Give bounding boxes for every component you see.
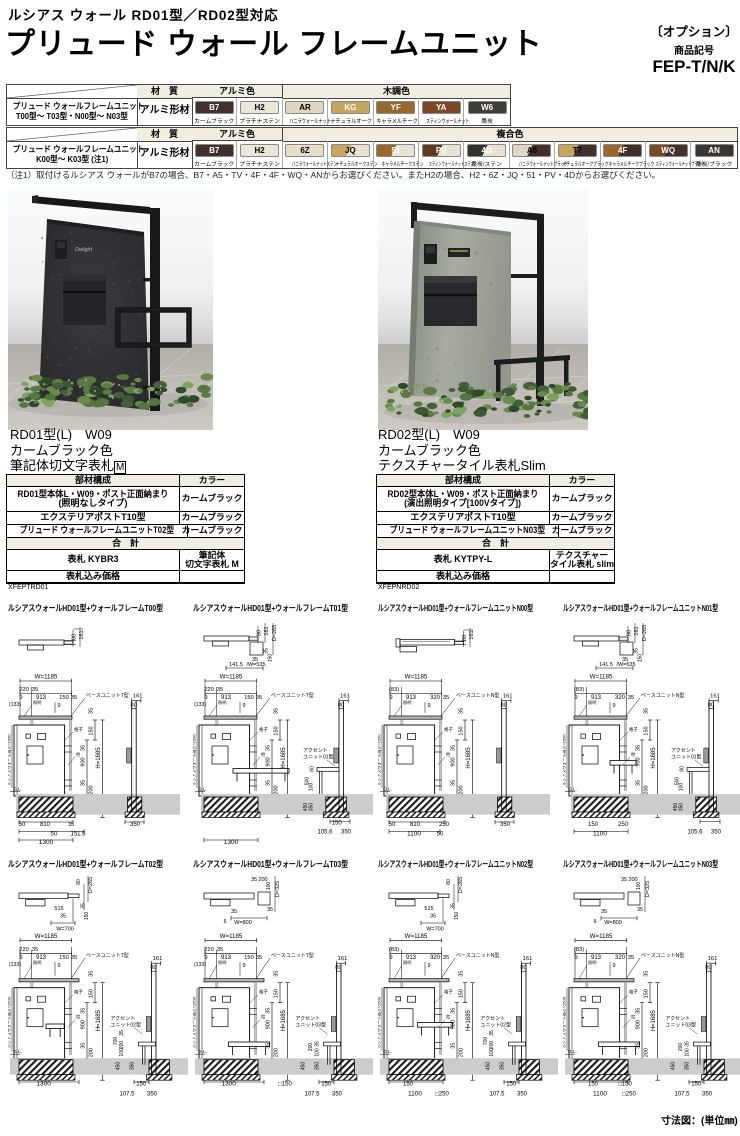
- svg-text:35: 35: [89, 708, 95, 714]
- svg-text:80: 80: [310, 766, 316, 772]
- svg-text:900: 900: [636, 1020, 642, 1029]
- svg-text:200: 200: [644, 1048, 650, 1057]
- svg-text:100: 100: [315, 1048, 321, 1057]
- svg-text:格子: 格子: [74, 989, 83, 996]
- svg-text:35: 35: [267, 907, 273, 913]
- svg-text:161: 161: [469, 630, 475, 639]
- svg-text:35: 35: [81, 780, 87, 786]
- svg-text:80: 80: [335, 965, 341, 971]
- svg-text:□150: □150: [278, 1082, 292, 1088]
- svg-text:□250: □250: [622, 1092, 636, 1098]
- svg-text:35: 35: [217, 687, 223, 693]
- svg-text:35: 35: [264, 648, 270, 654]
- svg-text:150: 150: [459, 989, 465, 998]
- svg-text:9: 9: [613, 963, 616, 969]
- svg-text:350: 350: [308, 803, 314, 812]
- svg-text:W=1185: W=1185: [35, 933, 58, 940]
- svg-text:柱: 柱: [631, 1014, 636, 1021]
- svg-text:ルシアスウォールHD01型+ウォールフレームユニットN03型: ルシアスウォールHD01型+ウォールフレームユニットN03型: [563, 859, 718, 869]
- svg-text:161: 161: [708, 956, 718, 962]
- svg-text:200: 200: [274, 785, 280, 794]
- svg-text:格子: 格子: [74, 726, 83, 733]
- svg-text:アクセント: アクセント: [295, 1016, 320, 1022]
- svg-text:35: 35: [251, 877, 257, 883]
- svg-text:ルシアスウォールHD01型+ウォールフレームユニットN01型: ルシアスウォールHD01型+ウォールフレームユニットN01型: [563, 603, 718, 613]
- svg-text:35: 35: [89, 971, 95, 977]
- svg-text:1300: 1300: [36, 1081, 51, 1088]
- svg-text:350: 350: [147, 1092, 158, 1098]
- svg-text:150: 150: [691, 1082, 702, 1088]
- svg-text:80: 80: [76, 879, 82, 885]
- svg-text:柱: 柱: [446, 751, 451, 758]
- svg-text:35: 35: [430, 914, 436, 920]
- svg-text:アクセント: アクセント: [110, 1016, 135, 1022]
- svg-text:照明: 照明: [218, 960, 226, 966]
- svg-text:35: 35: [621, 877, 627, 883]
- svg-text:35: 35: [32, 947, 38, 953]
- svg-text:/W=535: /W=535: [246, 662, 265, 668]
- svg-text:80: 80: [150, 965, 156, 971]
- svg-text:35: 35: [266, 745, 272, 751]
- svg-text:ベースユニットT型: ベースユニットT型: [271, 952, 314, 959]
- svg-text:35: 35: [443, 955, 449, 961]
- svg-text:700: 700: [113, 1037, 119, 1046]
- svg-text:アクセント: アクセント: [303, 748, 328, 754]
- svg-text:35: 35: [634, 648, 640, 654]
- svg-text:ユニット01型: ユニット01型: [303, 754, 334, 761]
- svg-text:107.5: 107.5: [304, 1092, 320, 1098]
- svg-text:350: 350: [500, 822, 511, 828]
- svg-text:(133): (133): [194, 962, 206, 968]
- svg-text:W=1185: W=1185: [220, 674, 243, 681]
- svg-text:ベースユニットT型: ベースユニットT型: [271, 692, 314, 699]
- svg-text:ユニット02型: ユニット02型: [480, 1022, 511, 1029]
- svg-text:161: 161: [338, 956, 348, 962]
- svg-text:H=1685: H=1685: [651, 747, 657, 769]
- svg-text:柱: 柱: [631, 751, 636, 758]
- svg-text:450: 450: [115, 1062, 121, 1071]
- svg-text:ユニット01型: ユニット01型: [671, 754, 702, 761]
- svg-text:150: 150: [644, 989, 650, 998]
- svg-text:ベースユニットN型: ベースユニットN型: [456, 692, 499, 699]
- svg-text:D=325: D=325: [275, 881, 281, 897]
- svg-text:350: 350: [685, 1062, 691, 1071]
- svg-text:810: 810: [410, 822, 421, 828]
- svg-text:50: 50: [19, 822, 26, 828]
- svg-text:200: 200: [489, 1041, 495, 1050]
- svg-text:ルシアスウォール高さ=1500: ルシアスウォール高さ=1500: [8, 734, 12, 786]
- svg-text:220: 220: [204, 687, 214, 693]
- svg-text:900: 900: [636, 757, 642, 766]
- svg-text:ルシアスウォール高さ=1500: ルシアスウォール高さ=1500: [378, 734, 382, 786]
- svg-text:100: 100: [266, 882, 272, 891]
- svg-text:アクセント: アクセント: [480, 1016, 505, 1022]
- svg-text:W=800: W=800: [234, 920, 252, 926]
- svg-text:161: 161: [340, 694, 350, 700]
- svg-text:35: 35: [81, 1008, 87, 1014]
- svg-text:35: 35: [637, 907, 643, 913]
- svg-text:200: 200: [459, 1048, 465, 1057]
- svg-text:35: 35: [636, 780, 642, 786]
- svg-text:515: 515: [424, 906, 433, 912]
- svg-text:80: 80: [130, 702, 136, 708]
- svg-text:6: 6: [224, 919, 227, 925]
- svg-text:W=1185: W=1185: [35, 674, 58, 681]
- svg-text:ベースユニットT型: ベースユニットT型: [86, 692, 129, 699]
- svg-text:320: 320: [430, 955, 441, 961]
- svg-text:150: 150: [403, 1082, 414, 1088]
- svg-text:150: 150: [89, 726, 95, 735]
- svg-text:100: 100: [636, 882, 642, 891]
- svg-text:35: 35: [266, 780, 272, 786]
- svg-text:35: 35: [119, 1030, 125, 1036]
- svg-text:(83): (83): [389, 947, 399, 953]
- svg-text:107.5: 107.5: [119, 1092, 135, 1098]
- svg-text:35: 35: [451, 1008, 457, 1014]
- svg-text:35: 35: [32, 687, 38, 693]
- svg-text:350: 350: [711, 830, 722, 836]
- svg-text:W=700: W=700: [426, 927, 444, 933]
- svg-text:150: 150: [59, 955, 69, 961]
- svg-text:80: 80: [462, 635, 468, 641]
- svg-text:照明: 照明: [33, 960, 41, 966]
- svg-text:9: 9: [58, 963, 61, 969]
- svg-text:350: 350: [341, 830, 352, 836]
- svg-text:H=1685: H=1685: [281, 747, 287, 769]
- svg-text:200: 200: [459, 785, 465, 794]
- svg-text:161: 161: [710, 694, 720, 700]
- svg-text:200: 200: [644, 785, 650, 794]
- svg-text:35: 35: [459, 708, 465, 714]
- svg-text:(83): (83): [574, 947, 584, 953]
- svg-text:ユニット03型: ユニット03型: [295, 1022, 326, 1029]
- svg-text:100: 100: [685, 1048, 691, 1057]
- svg-text:35: 35: [451, 903, 457, 909]
- svg-text:H=1685: H=1685: [466, 1009, 472, 1031]
- svg-text:9: 9: [613, 703, 616, 709]
- svg-text:900: 900: [81, 1020, 87, 1029]
- svg-text:35: 35: [644, 708, 650, 714]
- svg-text:照明: 照明: [588, 700, 596, 706]
- svg-text:220: 220: [19, 947, 29, 953]
- svg-text:320: 320: [430, 695, 441, 701]
- svg-text:150: 150: [506, 1082, 517, 1088]
- svg-text:ベースユニットN型: ベースユニットN型: [641, 692, 684, 699]
- svg-text:Delight: Delight: [75, 247, 93, 253]
- svg-text:1100: 1100: [593, 1091, 607, 1098]
- svg-text:アクセント: アクセント: [665, 1016, 690, 1022]
- svg-text:35: 35: [81, 903, 87, 909]
- svg-text:100: 100: [308, 783, 314, 792]
- svg-text:350: 350: [678, 803, 684, 812]
- svg-text:450: 450: [670, 1062, 676, 1071]
- svg-text:照明: 照明: [403, 700, 411, 706]
- svg-text:□250: □250: [435, 1092, 449, 1098]
- svg-text:320: 320: [615, 695, 626, 701]
- svg-text:161: 161: [153, 956, 163, 962]
- svg-text:柱: 柱: [76, 1014, 81, 1021]
- svg-text:161: 161: [264, 626, 270, 635]
- svg-text:柱: 柱: [446, 1014, 451, 1021]
- svg-text:35: 35: [443, 695, 449, 701]
- svg-text:250: 250: [439, 822, 450, 828]
- svg-text:161: 161: [133, 694, 143, 700]
- svg-text:□150: □150: [618, 1082, 632, 1088]
- svg-text:350: 350: [500, 1062, 506, 1071]
- svg-text:107.5: 107.5: [674, 1092, 690, 1098]
- svg-text:80: 80: [627, 630, 633, 636]
- svg-text:80: 80: [705, 965, 711, 971]
- svg-text:700: 700: [483, 1037, 489, 1046]
- svg-text:50: 50: [437, 832, 444, 838]
- svg-text:350: 350: [332, 1092, 343, 1098]
- svg-text:900: 900: [81, 757, 87, 766]
- svg-text:80: 80: [257, 630, 263, 636]
- svg-text:W=1185: W=1185: [590, 933, 613, 940]
- svg-text:照明: 照明: [33, 700, 41, 706]
- svg-text:200: 200: [89, 785, 95, 794]
- svg-text:H=1685: H=1685: [96, 747, 102, 769]
- svg-text:W=700: W=700: [56, 927, 74, 933]
- svg-text:ルシアスウォールHD01型+ウォールフレームT00型: ルシアスウォールHD01型+ウォールフレームT00型: [8, 603, 163, 613]
- svg-text:150: 150: [59, 695, 69, 701]
- svg-text:ルシアスウォール高さ=1500: ルシアスウォール高さ=1500: [193, 734, 197, 786]
- svg-text:ベースユニットN型: ベースユニットN型: [641, 952, 684, 959]
- svg-text:35: 35: [685, 1041, 691, 1047]
- svg-text:35: 35: [636, 745, 642, 751]
- svg-text:150: 150: [274, 989, 280, 998]
- svg-text:柱: 柱: [76, 751, 81, 758]
- svg-text:450: 450: [300, 1062, 306, 1071]
- svg-text:150: 150: [588, 1082, 599, 1088]
- svg-text:35: 35: [451, 1043, 457, 1049]
- svg-text:W=1185: W=1185: [590, 674, 613, 681]
- svg-text:150: 150: [321, 1082, 332, 1088]
- svg-text:35: 35: [60, 914, 66, 920]
- svg-text:450: 450: [485, 1062, 491, 1071]
- svg-text:W=1185: W=1185: [405, 674, 428, 681]
- svg-text:35: 35: [315, 1041, 321, 1047]
- svg-text:(83): (83): [389, 687, 399, 693]
- svg-text:1100: 1100: [408, 1091, 422, 1098]
- svg-text:(133): (133): [194, 702, 206, 708]
- svg-text:ルシアスウォールHD01型+ウォールフレームT01型: ルシアスウォールHD01型+ウォールフレームT01型: [193, 603, 348, 613]
- svg-text:H=1685: H=1685: [466, 747, 472, 769]
- svg-text:150: 150: [268, 654, 274, 663]
- svg-text:ルシアスウォール高さ=1500: ルシアスウォール高さ=1500: [563, 734, 567, 786]
- svg-text:H=1685: H=1685: [96, 1009, 102, 1031]
- svg-text:105.6: 105.6: [317, 830, 333, 836]
- svg-text:ベースユニットN型: ベースユニットN型: [456, 952, 499, 959]
- svg-text:35: 35: [644, 971, 650, 977]
- svg-text:150: 150: [454, 912, 460, 921]
- svg-text:D=265: D=265: [458, 877, 464, 893]
- svg-text:50: 50: [389, 822, 396, 828]
- svg-text:35: 35: [601, 909, 607, 915]
- svg-text:35: 35: [274, 971, 280, 977]
- svg-text:200: 200: [274, 1048, 280, 1057]
- svg-text:900: 900: [451, 757, 457, 766]
- svg-text:(133): (133): [9, 962, 21, 968]
- svg-text:161: 161: [503, 694, 513, 700]
- svg-text:350: 350: [517, 1092, 528, 1098]
- svg-text:照明: 照明: [218, 700, 226, 706]
- svg-text:格子: 格子: [259, 726, 268, 733]
- svg-text:150: 150: [89, 989, 95, 998]
- svg-text:900: 900: [266, 1020, 272, 1029]
- svg-text:150: 150: [638, 654, 644, 663]
- svg-text:ルシアスウォール高さ=1500: ルシアスウォール高さ=1500: [8, 996, 12, 1048]
- svg-text:35: 35: [217, 947, 223, 953]
- svg-text:105.6: 105.6: [687, 830, 703, 836]
- svg-text:ルシアスウォール高さ=1500: ルシアスウォール高さ=1500: [378, 996, 382, 1048]
- svg-text:ルシアスウォールHD01型+ウォールフレームユニットN00型: ルシアスウォールHD01型+ウォールフレームユニットN00型: [378, 603, 533, 613]
- svg-text:H=1685: H=1685: [281, 1009, 287, 1031]
- svg-text:80: 80: [72, 634, 78, 640]
- svg-text:(83): (83): [574, 687, 584, 693]
- svg-text:150: 150: [644, 726, 650, 735]
- svg-text:150: 150: [84, 912, 90, 921]
- svg-text:80: 80: [708, 702, 714, 708]
- svg-text:35: 35: [628, 695, 634, 701]
- svg-text:161: 161: [523, 956, 533, 962]
- svg-text:35: 35: [628, 955, 634, 961]
- svg-text:H=1685: H=1685: [651, 1009, 657, 1031]
- svg-text:9: 9: [58, 703, 61, 709]
- svg-text:900: 900: [451, 1020, 457, 1029]
- svg-text:200: 200: [119, 1041, 125, 1050]
- svg-text:ルシアスウォールHD01型+ウォールフレームユニットN02型: ルシアスウォールHD01型+ウォールフレームユニットN02型: [378, 859, 533, 869]
- svg-text:ルシアスウォール高さ=1500: ルシアスウォール高さ=1500: [193, 996, 197, 1048]
- svg-text:141.5: 141.5: [599, 662, 613, 668]
- svg-text:161: 161: [79, 630, 85, 639]
- svg-text:80: 80: [500, 702, 506, 708]
- svg-text:100: 100: [678, 783, 684, 792]
- svg-text:W=1185: W=1185: [220, 933, 243, 940]
- svg-text:35: 35: [266, 1008, 272, 1014]
- svg-text:W=800: W=800: [604, 920, 622, 926]
- svg-text:ルシアスウォールHD01型+ウォールフレームT02型: ルシアスウォールHD01型+ウォールフレームT02型: [8, 859, 163, 869]
- svg-text:アクセント: アクセント: [671, 748, 696, 754]
- svg-text:810: 810: [40, 822, 51, 828]
- svg-text:照明: 照明: [403, 960, 411, 966]
- svg-text:格子: 格子: [259, 989, 268, 996]
- svg-text:200: 200: [678, 1043, 684, 1052]
- svg-text:141.5: 141.5: [229, 662, 243, 668]
- svg-text:350: 350: [315, 1062, 321, 1071]
- svg-text:900: 900: [266, 757, 272, 766]
- svg-text:格子: 格子: [444, 726, 453, 733]
- svg-text:1300: 1300: [221, 1081, 236, 1088]
- svg-text:35: 35: [459, 971, 465, 977]
- svg-text:/W=535: /W=535: [616, 662, 635, 668]
- svg-text:9: 9: [428, 703, 431, 709]
- svg-text:150: 150: [588, 822, 599, 828]
- svg-text:D=325: D=325: [645, 881, 651, 897]
- svg-text:D=265: D=265: [88, 877, 94, 893]
- svg-text:格子: 格子: [629, 989, 638, 996]
- svg-text:ユニット03型: ユニット03型: [665, 1022, 696, 1029]
- svg-text:35: 35: [81, 745, 87, 751]
- svg-text:80: 80: [338, 702, 344, 708]
- svg-text:220: 220: [19, 687, 29, 693]
- svg-text:50: 50: [51, 832, 58, 838]
- svg-text:(133): (133): [9, 702, 21, 708]
- svg-text:100: 100: [119, 1048, 125, 1057]
- svg-text:ルシアスウォール高さ=1500: ルシアスウォール高さ=1500: [563, 996, 567, 1048]
- svg-text:35: 35: [489, 1030, 495, 1036]
- svg-text:150: 150: [244, 695, 254, 701]
- svg-text:6: 6: [594, 919, 597, 925]
- svg-text:ユニット02型: ユニット02型: [110, 1022, 141, 1029]
- svg-text:35: 35: [636, 1008, 642, 1014]
- svg-text:W=1185: W=1185: [405, 933, 428, 940]
- svg-text:80: 80: [446, 879, 452, 885]
- svg-text:250: 250: [618, 822, 629, 828]
- svg-text:150: 150: [136, 1082, 147, 1088]
- svg-text:161: 161: [634, 626, 640, 635]
- svg-text:柱: 柱: [261, 1014, 266, 1021]
- svg-text:9: 9: [428, 963, 431, 969]
- svg-text:柱: 柱: [261, 751, 266, 758]
- svg-text:515: 515: [54, 906, 63, 912]
- svg-text:35: 35: [274, 708, 280, 714]
- svg-text:格子: 格子: [629, 726, 638, 733]
- svg-text:100: 100: [489, 1048, 495, 1057]
- svg-text:35: 35: [266, 1043, 272, 1049]
- svg-text:200: 200: [89, 1048, 95, 1057]
- svg-text:150: 150: [459, 726, 465, 735]
- svg-text:ルシアスウォールHD01型+ウォールフレームT03型: ルシアスウォールHD01型+ウォールフレームT03型: [193, 859, 348, 869]
- svg-text:35: 35: [231, 909, 237, 915]
- svg-text:35: 35: [636, 1043, 642, 1049]
- svg-text:150: 150: [274, 726, 280, 735]
- svg-text:107.5: 107.5: [489, 1092, 505, 1098]
- svg-text:ベースユニットT型: ベースユニットT型: [86, 952, 129, 959]
- svg-text:350: 350: [130, 822, 141, 828]
- svg-text:35: 35: [451, 745, 457, 751]
- svg-text:200: 200: [308, 1043, 314, 1052]
- svg-text:350: 350: [130, 1062, 136, 1071]
- svg-text:80: 80: [680, 766, 686, 772]
- svg-text:35: 35: [451, 780, 457, 786]
- svg-text:格子: 格子: [444, 989, 453, 996]
- svg-text:150: 150: [244, 955, 254, 961]
- svg-text:80: 80: [520, 965, 526, 971]
- svg-text:35: 35: [81, 1043, 87, 1049]
- svg-text:220: 220: [204, 947, 214, 953]
- svg-text:350: 350: [702, 1092, 713, 1098]
- svg-text:320: 320: [615, 955, 626, 961]
- svg-text:照明: 照明: [588, 960, 596, 966]
- svg-text:9: 9: [243, 703, 246, 709]
- svg-text:9: 9: [243, 963, 246, 969]
